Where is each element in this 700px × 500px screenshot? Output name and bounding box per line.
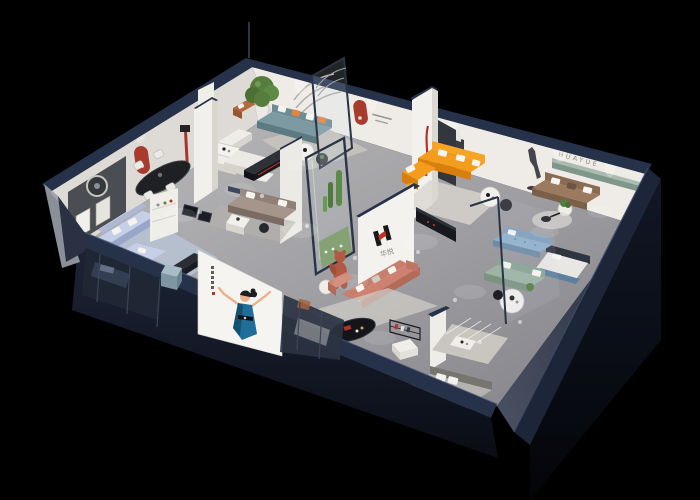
side-table [259,223,269,233]
red-seal [212,292,215,295]
showroom-render: HUAYUE [0,0,700,500]
blue-ottoman-cube [161,264,182,290]
partition-wall [194,97,218,204]
cactus [328,182,333,208]
cactus [323,196,327,212]
cactus [336,170,342,206]
isometric-floorplan: HUAYUE [0,0,700,500]
glass-terrarium [306,138,354,274]
